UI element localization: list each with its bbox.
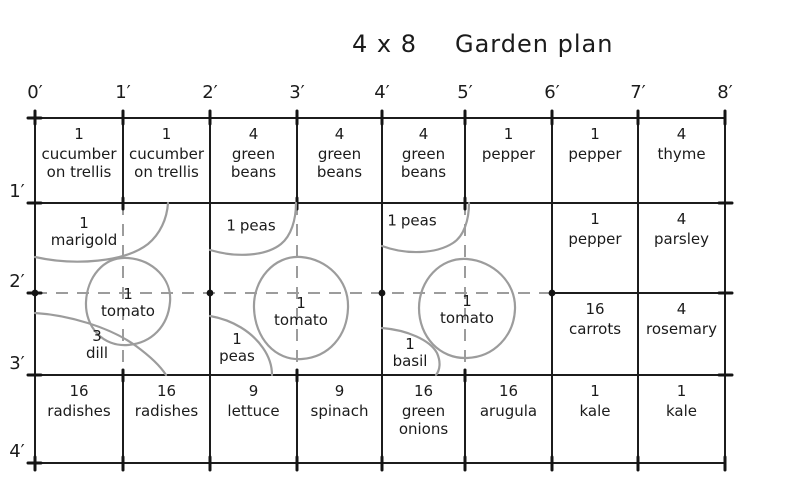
feature-name: peas — [399, 212, 439, 230]
plot-count: 1 — [590, 126, 600, 143]
axis-label-top: 4′ — [367, 82, 397, 103]
feature-name: tomato — [101, 303, 155, 320]
plot-name: green onions — [385, 402, 462, 438]
feature-label-marigold: 1marigold — [51, 215, 118, 249]
axis-label-top: 8′ — [710, 82, 740, 103]
plot-count: 16 — [414, 383, 433, 400]
plot-cell: 16radishes — [126, 378, 207, 460]
plot-count: 1 — [590, 383, 600, 400]
feature-label-tomato: 1tomato — [101, 286, 155, 320]
plot-cell: 1cucumber on trellis — [38, 121, 120, 200]
plot-cell: 1pepper — [468, 121, 549, 200]
feature-count: 1 — [51, 215, 118, 232]
feature-inline-text: 1peas — [385, 213, 438, 230]
plot-name: cucumber on trellis — [126, 145, 207, 181]
feature-label-tomato: 1tomato — [440, 293, 494, 327]
plot-cell: 4rosemary — [641, 296, 722, 372]
plot-count: 16 — [585, 301, 604, 318]
plot-cell: 4thyme — [641, 121, 722, 200]
feature-count: 1 — [385, 212, 399, 230]
axis-label-top: 3′ — [282, 82, 312, 103]
plot-count: 16 — [157, 383, 176, 400]
plot-name: green beans — [385, 145, 462, 181]
plot-cell: 1kale — [641, 378, 722, 460]
plot-name: carrots — [569, 320, 621, 338]
plot-cell: 16arugula — [468, 378, 549, 460]
plot-name: spinach — [311, 402, 369, 420]
feature-count: 1 — [440, 293, 494, 310]
garden-plan-canvas: 4 x 8 Garden plan — [0, 0, 800, 495]
plot-name: radishes — [135, 402, 198, 420]
plot-cell: 4green beans — [300, 121, 379, 200]
plot-cell: 9spinach — [300, 378, 379, 460]
plot-count: 4 — [249, 126, 259, 143]
plot-count: 4 — [677, 126, 687, 143]
plot-cell: 16radishes — [38, 378, 120, 460]
axis-label-top: 1′ — [108, 82, 138, 103]
plot-cell: 16carrots — [555, 296, 635, 372]
plot-cell: 4green beans — [213, 121, 294, 200]
plot-cell: 1pepper — [555, 206, 635, 290]
plot-cell: 9lettuce — [213, 378, 294, 460]
feature-count: 1 — [101, 286, 155, 303]
plot-name: kale — [579, 402, 610, 420]
plot-name: green beans — [213, 145, 294, 181]
plot-count: 4 — [677, 301, 687, 318]
axis-label-top: 2′ — [195, 82, 225, 103]
axis-label-left: 4′ — [2, 441, 32, 462]
plot-count: 1 — [590, 211, 600, 228]
plot-count: 16 — [69, 383, 88, 400]
plot-name: rosemary — [646, 320, 717, 338]
plot-name: lettuce — [227, 402, 279, 420]
feature-label-tomato: 1tomato — [274, 295, 328, 329]
axis-label-top: 6′ — [537, 82, 567, 103]
feature-count: 1 — [219, 331, 255, 348]
feature-label-peas: 1peas — [219, 331, 255, 365]
plot-count: 1 — [74, 126, 84, 143]
plot-count: 16 — [499, 383, 518, 400]
plot-name: pepper — [482, 145, 535, 163]
feature-label-dill: 3dill — [86, 328, 108, 362]
plot-count: 1 — [162, 126, 172, 143]
feature-count: 1 — [224, 217, 238, 235]
plot-cell: 16green onions — [385, 378, 462, 460]
feature-name: tomato — [274, 312, 328, 329]
axis-label-left: 3′ — [2, 353, 32, 374]
plot-cell: 1cucumber on trellis — [126, 121, 207, 200]
plot-count: 4 — [335, 126, 345, 143]
plot-count: 9 — [335, 383, 345, 400]
plot-name: radishes — [47, 402, 110, 420]
plot-cell: 1kale — [555, 378, 635, 460]
plot-cell: 4parsley — [641, 206, 722, 290]
plot-count: 4 — [419, 126, 429, 143]
plot-cell: 4green beans — [385, 121, 462, 200]
plot-cell: 1pepper — [555, 121, 635, 200]
feature-name: marigold — [51, 232, 118, 249]
feature-name: tomato — [440, 310, 494, 327]
plot-name: thyme — [657, 145, 705, 163]
feature-label-peas: 1peas — [385, 213, 438, 230]
plot-count: 4 — [677, 211, 687, 228]
plot-name: pepper — [568, 230, 621, 248]
feature-inline-text: 1peas — [224, 218, 277, 235]
axis-label-top: 0′ — [20, 82, 50, 103]
plot-name: arugula — [480, 402, 537, 420]
feature-label-basil: 1basil — [393, 336, 428, 370]
plot-count: 9 — [249, 383, 259, 400]
plot-name: cucumber on trellis — [38, 145, 120, 181]
axis-label-top: 7′ — [623, 82, 653, 103]
plot-name: kale — [666, 402, 697, 420]
feature-name: peas — [219, 348, 255, 365]
feature-name: peas — [238, 217, 278, 235]
plot-name: pepper — [568, 145, 621, 163]
feature-count: 1 — [274, 295, 328, 312]
axis-label-left: 1′ — [2, 181, 32, 202]
feature-name: dill — [86, 345, 108, 362]
plot-name: green beans — [300, 145, 379, 181]
feature-label-peas: 1peas — [224, 218, 277, 235]
plot-count: 1 — [677, 383, 687, 400]
feature-count: 3 — [86, 328, 108, 345]
plot-name: parsley — [654, 230, 709, 248]
plot-count: 1 — [504, 126, 514, 143]
axis-label-left: 2′ — [2, 271, 32, 292]
feature-name: basil — [393, 353, 428, 370]
feature-count: 1 — [393, 336, 428, 353]
axis-label-top: 5′ — [450, 82, 480, 103]
